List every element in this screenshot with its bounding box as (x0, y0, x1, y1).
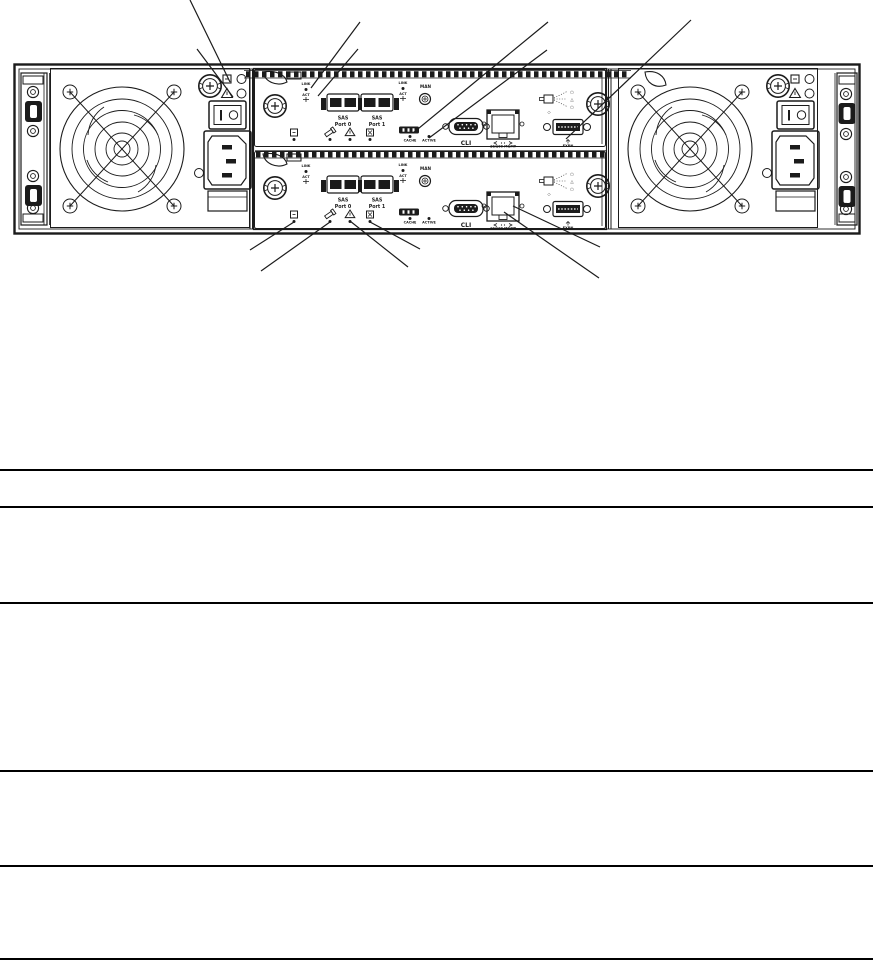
manual-page: LINK ACT SAS Port 0 SAS Po (0, 0, 873, 963)
rail-screw-icon (27, 170, 38, 181)
callout-ethernet-label (504, 212, 599, 278)
callout-ok-led (250, 222, 294, 250)
callout-psu-ok-led (190, 0, 230, 82)
controller-module-a (255, 70, 610, 149)
callout-fault-led (350, 221, 408, 267)
rail-screw-icon (27, 125, 38, 136)
storage-array-rear-view-diagram: LINK ACT SAS Port 0 SAS Po (0, 0, 873, 290)
table-rule-row2 (0, 770, 873, 772)
table-rule-bottom (0, 958, 873, 960)
right-psu-handle-rail (837, 73, 857, 225)
table-rule-row3 (0, 865, 873, 867)
callout-ok-to-remove-led (370, 222, 420, 249)
right-psu-latch[interactable] (645, 72, 666, 87)
callout-expansion-port (566, 20, 691, 139)
power-supply-right (619, 69, 820, 228)
rail-screw-icon (840, 88, 851, 99)
left-psu-handle-rail (21, 73, 47, 225)
latch-clip[interactable] (839, 103, 856, 124)
controller-module-b (255, 152, 610, 231)
table-rule-row1 (0, 602, 873, 604)
rail-screw-icon (27, 86, 38, 97)
latch-clip[interactable] (25, 101, 42, 122)
callout-psu-fault-led (197, 49, 233, 97)
callout-cache-led (413, 22, 548, 133)
power-supply-left (51, 69, 252, 228)
table-rule-header (0, 506, 873, 508)
callout-lines (190, 0, 691, 278)
rail-screw-icon (840, 128, 851, 139)
callout-active-led (429, 50, 547, 138)
table-rule-top (0, 469, 873, 471)
rail-screw-icon (840, 171, 851, 182)
